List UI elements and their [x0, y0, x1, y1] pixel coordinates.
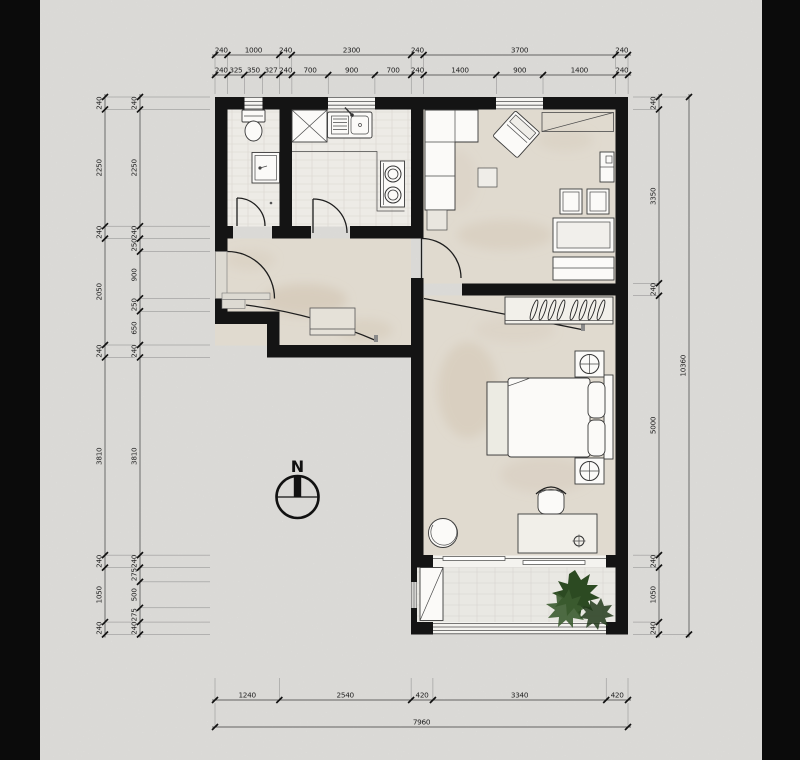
nightstand-lamp [575, 351, 604, 377]
kitchen-sink [328, 108, 373, 139]
dim-label: 3810 [95, 447, 104, 465]
balcony-front-glazing [433, 622, 606, 635]
dim-label: 3810 [130, 447, 139, 465]
balcony-side-window [411, 582, 417, 608]
dim-label: 1400 [451, 66, 469, 75]
low-cabinet [553, 257, 614, 280]
washbasin [252, 153, 280, 184]
nightstand-lamp [575, 458, 604, 484]
dim-label: 325 [229, 66, 242, 75]
kitchen-window [328, 97, 375, 110]
dim-label: 7960 [413, 718, 431, 727]
dim-label: 3700 [511, 46, 529, 55]
dim-label: 240 [95, 621, 104, 635]
dim-label: 900 [130, 268, 139, 282]
tv-bench [553, 218, 614, 252]
bed [487, 375, 613, 459]
dim-label: 240 [615, 46, 629, 55]
tub-chair [429, 519, 458, 548]
dim-label: 250 [130, 238, 139, 252]
dim-label: 2540 [337, 691, 355, 700]
dim-label: 420 [611, 691, 625, 700]
dim-label: 240 [615, 66, 629, 75]
dim-label: 240 [95, 554, 104, 568]
dim-label: 240 [130, 225, 139, 239]
wardrobe [505, 297, 613, 324]
dim-label: 700 [387, 66, 401, 75]
dim-label: 240 [411, 46, 425, 55]
desk [518, 514, 597, 553]
dim-label: 275 [130, 608, 139, 621]
dim-label: 240 [130, 96, 139, 110]
compass-north-label: N [291, 457, 304, 476]
dim-label: 240 [130, 554, 139, 568]
stool [587, 189, 609, 214]
dim-label: 1240 [238, 691, 256, 700]
coffee-table [478, 168, 497, 187]
living-window [496, 97, 543, 110]
dim-label: 327 [264, 66, 278, 75]
dim-label: 1400 [571, 66, 589, 75]
dim-label: 10360 [679, 354, 688, 376]
dim-label: 240 [649, 621, 658, 635]
floor-plan-drawing: N 24010002402300240370024024032535032724… [0, 0, 800, 760]
shoe-cabinet [310, 308, 355, 335]
dim-label: 240 [215, 46, 229, 55]
dim-label: 350 [247, 66, 261, 75]
dim-label: 240 [649, 96, 658, 110]
dim-label: 900 [513, 66, 527, 75]
dim-label: 240 [130, 344, 139, 358]
dim-label: 240 [215, 66, 229, 75]
dim-label: 500 [130, 588, 139, 602]
dim-label: 650 [130, 321, 139, 335]
dim-label: 240 [411, 66, 425, 75]
dim-label: 275 [130, 568, 139, 581]
side-cabinet [600, 152, 614, 182]
dim-label: 900 [345, 66, 359, 75]
dim-label: 2250 [95, 158, 104, 176]
dim-label: 420 [416, 691, 430, 700]
floor-plan-canvas: N 24010002402300240370024024032535032724… [0, 0, 800, 760]
dim-label: 240 [95, 344, 104, 358]
dim-label: 2250 [130, 158, 139, 176]
dim-label: 3340 [511, 691, 529, 700]
dim-label: 240 [649, 282, 658, 296]
dim-label: 1000 [245, 46, 263, 55]
kitchen-cabinet-x [292, 110, 327, 142]
dim-label: 240 [130, 621, 139, 635]
dim-label: 240 [279, 66, 293, 75]
balcony-sliding-door [433, 556, 606, 568]
dim-label: 5000 [649, 416, 658, 434]
dim-label: 3350 [649, 187, 658, 205]
desk-chair [536, 487, 566, 514]
bathroom-window [245, 97, 263, 110]
dim-label: 240 [279, 46, 293, 55]
dim-label: 2300 [343, 46, 361, 55]
hall-left-doorway [216, 252, 228, 299]
dim-label: 240 [95, 96, 104, 110]
stove [381, 161, 405, 207]
dim-label: 1050 [649, 585, 658, 603]
dim-label: 700 [304, 66, 318, 75]
dim-label: 240 [649, 554, 658, 568]
dim-label: 1050 [95, 585, 104, 603]
stool [560, 189, 582, 214]
dim-label: 240 [95, 225, 104, 239]
dim-label: 250 [130, 298, 139, 312]
balcony-cabinet [420, 568, 443, 621]
dim-label: 2050 [95, 282, 104, 300]
